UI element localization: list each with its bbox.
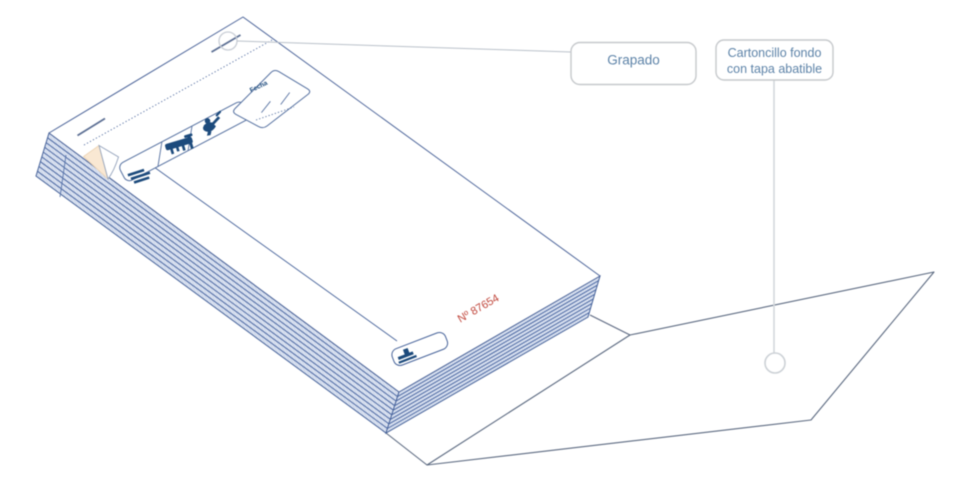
svg-text:con tapa abatible: con tapa abatible <box>727 62 822 76</box>
svg-text:Cartoncillo fondo: Cartoncillo fondo <box>728 46 822 60</box>
svg-text:Grapado: Grapado <box>607 53 660 68</box>
